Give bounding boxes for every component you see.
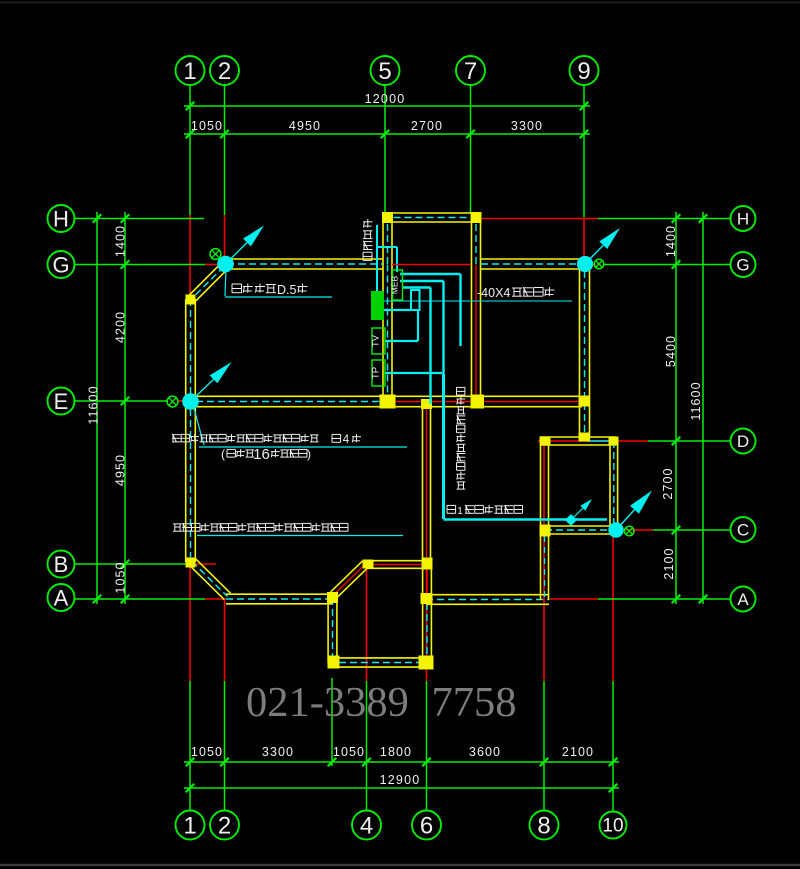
- svg-text:1: 1: [183, 813, 196, 840]
- svg-text:12000: 12000: [365, 92, 406, 106]
- svg-text:TP: TP: [371, 367, 382, 379]
- svg-text:1050: 1050: [333, 745, 365, 759]
- svg-text:4950: 4950: [114, 454, 128, 486]
- svg-text:A: A: [54, 585, 69, 610]
- svg-text:2: 2: [218, 813, 231, 840]
- svg-text:9: 9: [577, 58, 590, 85]
- svg-text:1400: 1400: [114, 225, 128, 257]
- svg-text:16: 16: [253, 446, 270, 463]
- svg-text:5400: 5400: [664, 335, 678, 367]
- svg-text:C: C: [737, 521, 749, 540]
- svg-text:2700: 2700: [661, 467, 675, 499]
- svg-text:1400: 1400: [664, 225, 678, 257]
- svg-text:G: G: [52, 252, 69, 277]
- svg-text:G: G: [736, 256, 749, 275]
- svg-text:1050: 1050: [191, 745, 223, 759]
- svg-text:B: B: [54, 552, 69, 577]
- svg-text:1: 1: [183, 58, 196, 85]
- svg-text:4: 4: [360, 813, 373, 840]
- svg-text:3600: 3600: [469, 745, 501, 759]
- svg-text:2: 2: [218, 58, 231, 85]
- svg-text:4200: 4200: [114, 311, 128, 343]
- svg-text:(: (: [221, 447, 225, 461]
- svg-text:4950: 4950: [289, 119, 321, 133]
- svg-text:021-3389 7758: 021-3389 7758: [246, 679, 517, 726]
- svg-text:H: H: [53, 206, 69, 231]
- svg-text:11600: 11600: [87, 385, 101, 424]
- svg-text:12900: 12900: [380, 773, 421, 787]
- svg-text:D.5: D.5: [277, 283, 297, 297]
- svg-text:4: 4: [343, 434, 350, 446]
- svg-text:H: H: [737, 210, 749, 229]
- svg-text:2100: 2100: [662, 547, 676, 579]
- svg-text:8: 8: [537, 813, 550, 840]
- svg-text:-40X4: -40X4: [477, 286, 510, 300]
- svg-text:2700: 2700: [411, 119, 443, 133]
- svg-text:5: 5: [378, 58, 391, 85]
- svg-text:): ): [307, 447, 311, 461]
- svg-text:TV: TV: [371, 334, 382, 347]
- svg-text:7: 7: [464, 58, 477, 85]
- svg-text:MEB: MEB: [390, 275, 400, 294]
- svg-text:D: D: [737, 432, 749, 451]
- svg-text:6: 6: [420, 813, 433, 840]
- svg-text:1800: 1800: [380, 745, 412, 759]
- svg-text:1: 1: [457, 506, 463, 517]
- svg-text:10: 10: [602, 816, 623, 837]
- svg-text:3300: 3300: [262, 745, 294, 759]
- svg-text:3300: 3300: [511, 119, 543, 133]
- svg-text:A: A: [737, 590, 749, 609]
- svg-text:1050: 1050: [191, 119, 223, 133]
- svg-text:E: E: [54, 389, 69, 414]
- svg-text:11600: 11600: [689, 381, 703, 420]
- svg-text:1050: 1050: [114, 561, 128, 593]
- svg-text:2100: 2100: [562, 745, 594, 759]
